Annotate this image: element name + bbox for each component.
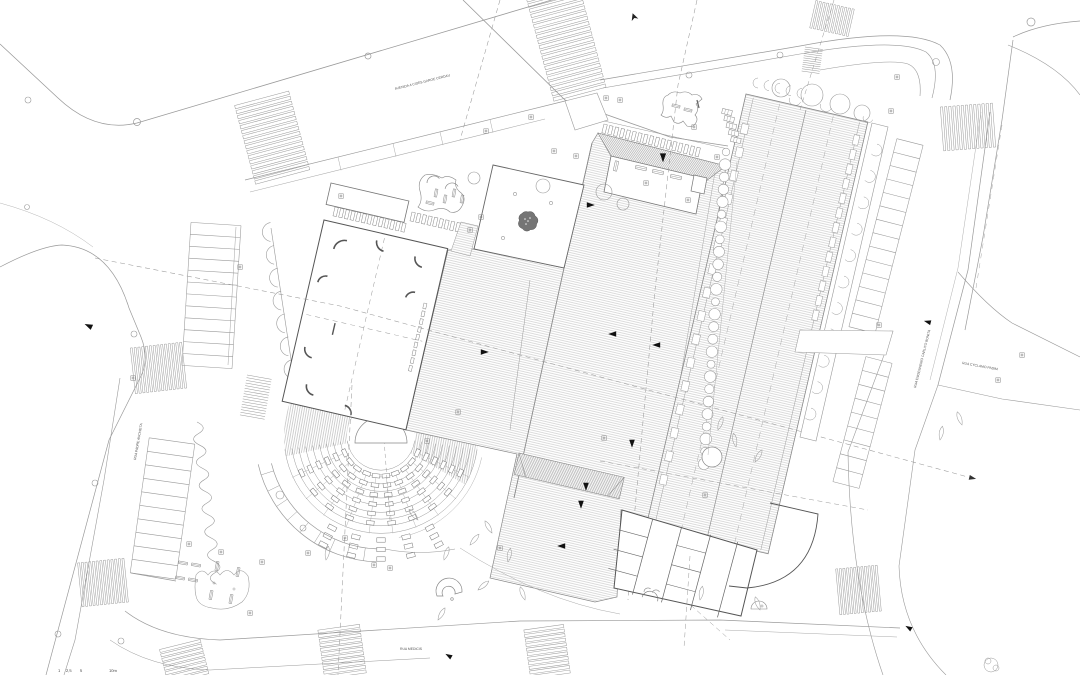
svg-text:RUA MEDICIS: RUA MEDICIS [400,647,423,651]
svg-text:10m: 10m [109,668,117,673]
svg-text:2,5: 2,5 [66,668,72,673]
